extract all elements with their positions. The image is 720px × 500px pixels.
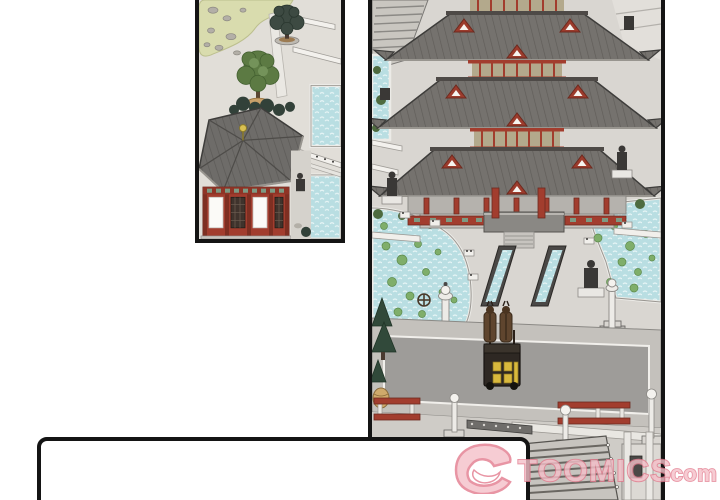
pavilion-facade [201,187,291,239]
stone-statue [296,179,305,191]
panel-temple-complex [368,0,665,500]
toomics-watermark: TOOMICS .com [452,440,720,494]
panel-garden-pavilion [195,0,345,243]
devil-horns-icon [456,445,510,494]
toomics-logo: TOOMICS .com [452,440,720,494]
clerestory-band [470,128,564,150]
temple-complex-illustration [372,0,661,500]
paper-door [253,197,267,228]
watermark-domain-suffix: .com [664,461,717,486]
stone-lantern-dark [624,16,634,30]
watermark-brand-text: TOOMICS [518,453,673,488]
garden-pavilion-illustration [199,0,341,239]
water-wheel [418,294,430,306]
paper-door [209,197,223,228]
carriage-body [484,344,520,390]
comic-page: TOOMICS .com [0,0,720,500]
gold-finial [240,125,247,132]
side-path [291,151,311,239]
